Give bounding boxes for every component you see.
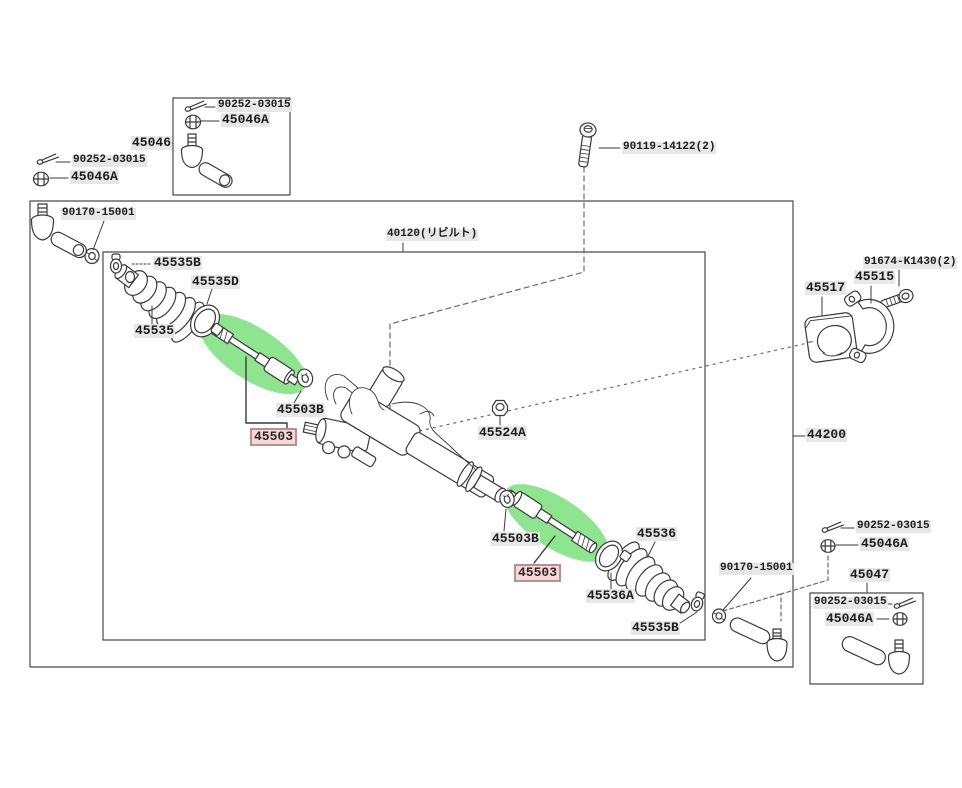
part-label-45524A: 45524A <box>478 426 527 440</box>
part-label-90252-03015-bottomright: 90252-03015 <box>856 521 931 533</box>
part-label-45503-left-highlighted[interactable]: 45503 <box>250 428 297 446</box>
part-label-45046A-box45047: 45046A <box>825 612 874 626</box>
part-label-45503B-left: 45503B <box>276 403 325 417</box>
part-label-40120-rebuilt: 40120(リビルト) <box>386 229 478 241</box>
part-label-45517: 45517 <box>805 281 846 295</box>
part-label-45535B-left: 45535B <box>153 256 202 270</box>
castle-nut-icon-box45046 <box>186 115 201 129</box>
part-label-45535D: 45535D <box>191 275 240 289</box>
part-label-45535: 45535 <box>134 324 175 338</box>
part-label-45047: 45047 <box>849 568 890 582</box>
cotter-pin-icon-bottomright <box>821 522 844 533</box>
flange-bolt-90119-drawing <box>575 122 597 168</box>
parts-diagram-canvas: 90252-03015 45046A 45046 90252-03015 450… <box>0 0 962 788</box>
part-label-45536: 45536 <box>636 527 677 541</box>
part-label-90252-03015-box45046: 90252-03015 <box>217 100 292 112</box>
nut-90170-left-drawing <box>85 249 99 264</box>
part-label-45536A: 45536A <box>586 589 635 603</box>
part-label-90252-03015-topleft: 90252-03015 <box>72 155 147 167</box>
tie-rod-end-box45047-drawing <box>840 634 910 674</box>
nut-45524A-drawing <box>493 401 508 416</box>
nut-90170-bottom-drawing <box>713 609 726 623</box>
castle-nut-icon-bottomright <box>821 540 835 553</box>
part-label-91674-K1430: 91674-K1430(2) <box>863 257 957 269</box>
cotter-pin-icon-box45047 <box>893 598 916 609</box>
diagram-line-art <box>0 0 962 788</box>
part-label-90119-14122: 90119-14122(2) <box>622 142 716 154</box>
castle-nut-icon-box45047 <box>893 613 907 626</box>
tie-rod-end-box45046-drawing <box>182 134 235 190</box>
cotter-pin-icon-topleft <box>36 154 59 165</box>
part-label-45535B-right: 45535B <box>631 621 680 635</box>
clamp-45535B-right-drawing <box>689 591 706 613</box>
part-label-90170-15001-bottom: 90170-15001 <box>719 563 794 575</box>
tie-rod-end-bottom-drawing <box>728 616 787 661</box>
part-label-45503B-right: 45503B <box>491 532 540 546</box>
part-label-45046: 45046 <box>131 136 172 150</box>
cotter-pin-icon-box45046 <box>184 101 207 112</box>
part-label-45046A-box45046: 45046A <box>221 113 270 127</box>
rack-assembly-drawing <box>300 364 513 535</box>
castle-nut-icon-topleft <box>34 172 49 186</box>
part-label-45046A-topleft: 45046A <box>70 170 119 184</box>
part-label-90170-15001-left: 90170-15001 <box>61 208 136 220</box>
part-label-45503-right-highlighted[interactable]: 45503 <box>514 564 561 582</box>
part-label-44200: 44200 <box>806 428 847 442</box>
leader-lines <box>50 107 899 627</box>
part-label-45046A-bottomright: 45046A <box>860 537 909 551</box>
part-label-90252-03015-box45047: 90252-03015 <box>813 597 888 609</box>
part-label-45515: 45515 <box>854 270 895 284</box>
